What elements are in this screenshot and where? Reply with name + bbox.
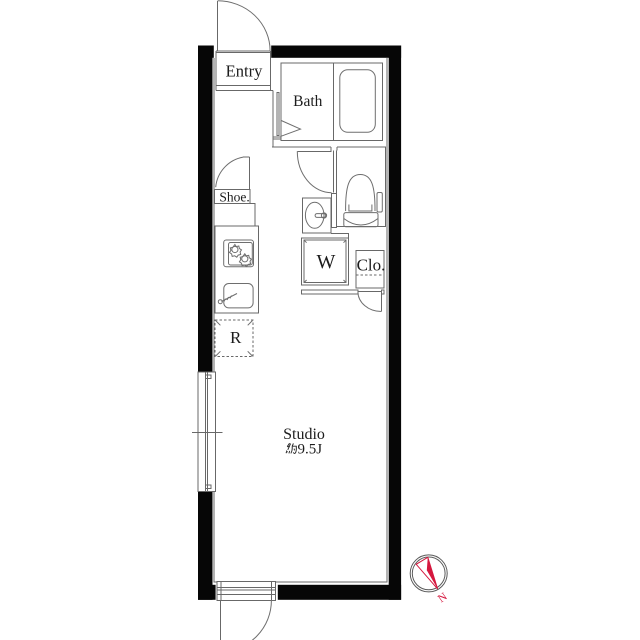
svg-text:Entry: Entry [226,62,263,81]
svg-text:Bath: Bath [293,93,323,110]
svg-text:9.5J: 9.5J [298,441,323,457]
svg-text:Clo.: Clo. [357,256,386,275]
svg-text:Shoe.: Shoe. [219,190,249,205]
svg-text:Studio: Studio [283,426,325,443]
svg-text:R: R [230,328,242,347]
svg-text:W: W [317,251,336,273]
